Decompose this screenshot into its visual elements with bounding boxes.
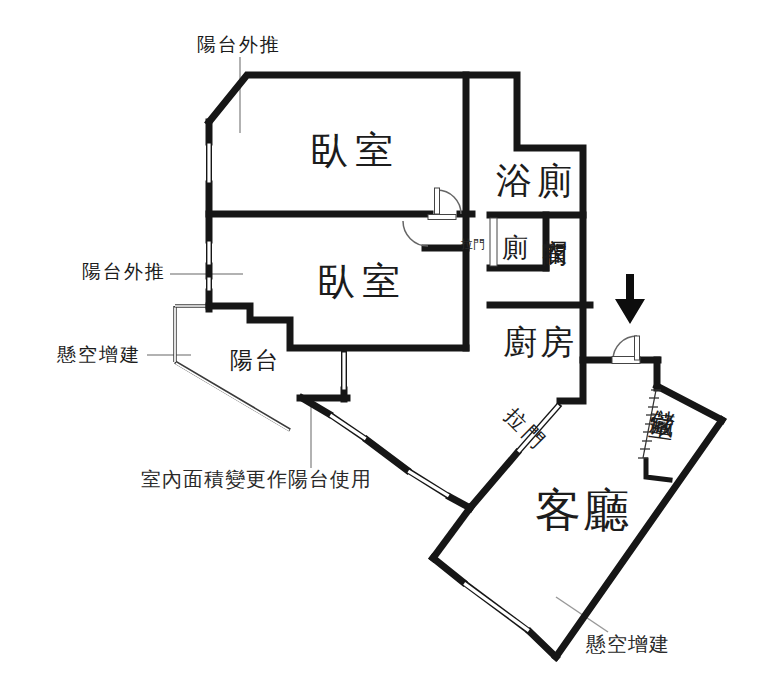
annotation-overhang-left: 懸空增建 xyxy=(57,345,141,365)
bedroom1-door-leaf xyxy=(435,188,440,214)
bedroom1-door-arc xyxy=(437,190,461,214)
room-label-kitchen: 廚房 xyxy=(503,325,577,361)
entry-door-leaf xyxy=(635,336,640,360)
annotation-overhang-bottom: 懸空增建 xyxy=(586,634,670,655)
floor-plan: 陽台外推 臥室 浴廁 拉門 廁 衣帽間 陽台外推 臥室 懸空增建 陽台 廚房 儲… xyxy=(0,0,765,695)
room-label-bedroom-1: 臥室 xyxy=(310,131,400,171)
bedroom2-door-arc xyxy=(403,221,428,246)
room-label-toilet: 廁 xyxy=(502,234,529,262)
annotation-area-change: 室內面積變更作陽台使用 xyxy=(141,469,372,490)
room-label-balcony: 陽台 xyxy=(230,348,280,372)
bedroom2-door-leaf xyxy=(428,215,456,220)
storage-folding-door xyxy=(638,390,661,458)
toilet-sliding-door xyxy=(490,218,497,266)
room-label-bath: 浴廁 xyxy=(496,162,578,200)
room-label-closet: 衣帽間 xyxy=(542,219,568,225)
entry-arrow-icon xyxy=(615,274,645,324)
room-label-bedroom-2: 臥室 xyxy=(317,262,407,302)
room-label-living-room: 客廳 xyxy=(535,486,631,534)
annotation-balcony-pushout-left: 陽台外推 xyxy=(82,262,166,282)
annotation-balcony-pushout-top: 陽台外推 xyxy=(197,35,281,55)
annotation-sliding-door-toilet: 拉門 xyxy=(461,238,485,251)
walls-bold xyxy=(209,75,722,657)
